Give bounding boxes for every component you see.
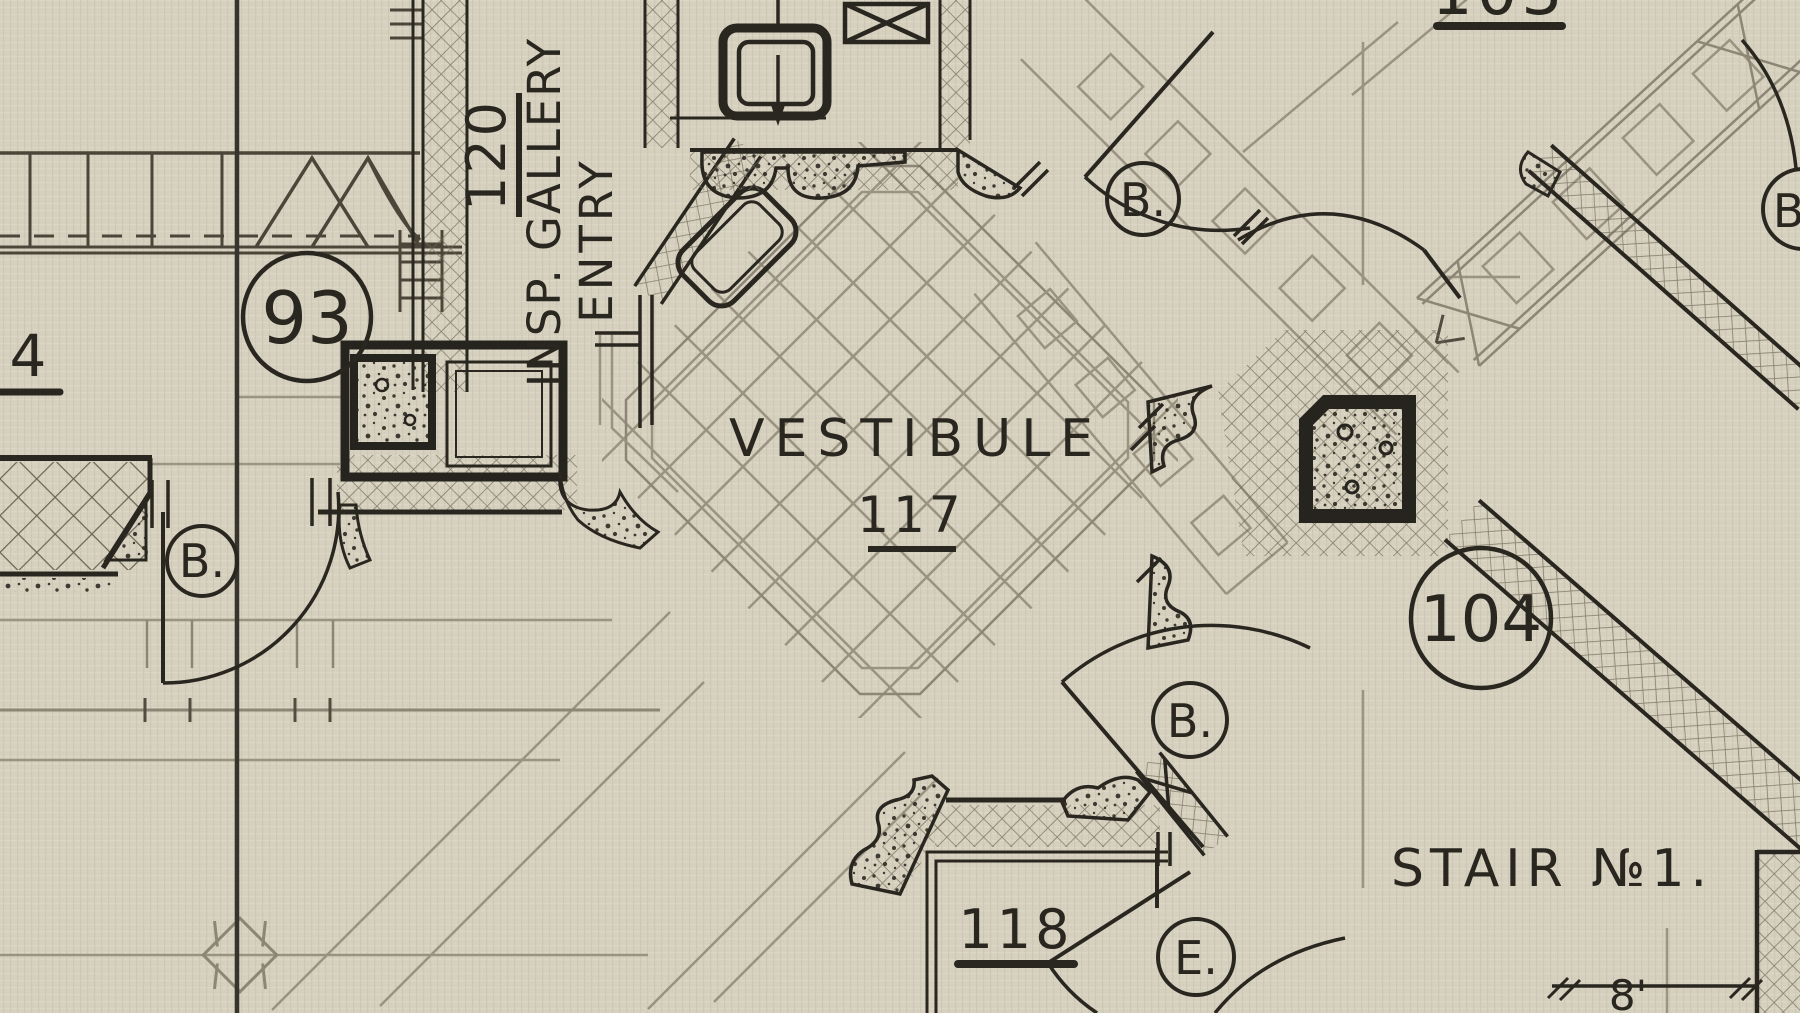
floor-plan-drawing: VESTIBULE 117 120 INSP. GALLERY ENTRY 11… (0, 0, 1800, 1013)
paper-grain-overlay (0, 0, 1800, 1013)
blueprint-scan: VESTIBULE 117 120 INSP. GALLERY ENTRY 11… (0, 0, 1800, 1013)
